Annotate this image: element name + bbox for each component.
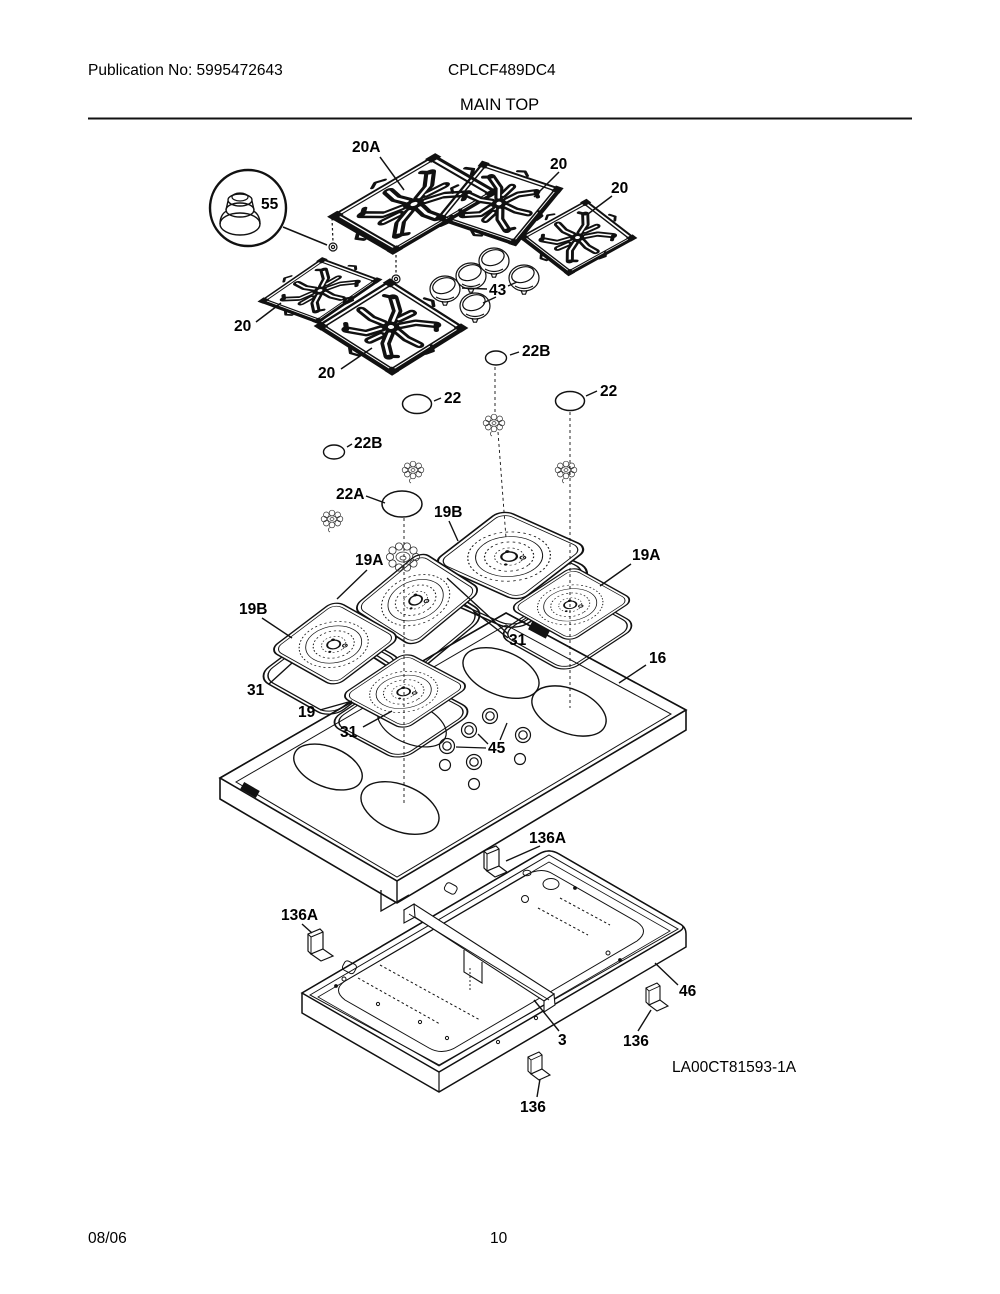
svg-text:136: 136 bbox=[520, 1099, 546, 1116]
svg-text:43: 43 bbox=[489, 282, 507, 299]
svg-text:55: 55 bbox=[261, 196, 279, 213]
svg-text:31: 31 bbox=[509, 632, 527, 649]
svg-text:16: 16 bbox=[649, 650, 667, 667]
svg-text:MAIN TOP: MAIN TOP bbox=[460, 96, 539, 114]
svg-text:3: 3 bbox=[558, 1032, 567, 1049]
svg-text:46: 46 bbox=[679, 983, 697, 1000]
svg-text:20A: 20A bbox=[352, 139, 380, 156]
svg-text:19B: 19B bbox=[434, 504, 462, 521]
svg-text:22A: 22A bbox=[336, 486, 364, 503]
svg-text:22: 22 bbox=[600, 383, 617, 400]
svg-text:45: 45 bbox=[488, 740, 506, 757]
svg-text:31: 31 bbox=[247, 682, 265, 699]
svg-text:19A: 19A bbox=[632, 547, 660, 564]
svg-text:20: 20 bbox=[550, 156, 567, 173]
svg-text:136A: 136A bbox=[529, 830, 566, 847]
svg-text:22: 22 bbox=[444, 390, 461, 407]
svg-text:19: 19 bbox=[298, 704, 316, 721]
svg-text:20: 20 bbox=[318, 365, 335, 382]
svg-text:136: 136 bbox=[623, 1033, 649, 1050]
svg-text:10: 10 bbox=[490, 1230, 508, 1247]
svg-text:136A: 136A bbox=[281, 907, 318, 924]
svg-text:19B: 19B bbox=[239, 601, 267, 618]
svg-text:08/06: 08/06 bbox=[88, 1230, 127, 1247]
svg-text:Publication No: 5995472643: Publication No: 5995472643 bbox=[88, 62, 283, 79]
svg-text:22B: 22B bbox=[354, 435, 382, 452]
svg-text:19A: 19A bbox=[355, 552, 383, 569]
svg-text:31: 31 bbox=[340, 724, 358, 741]
svg-text:20: 20 bbox=[611, 180, 628, 197]
svg-text:CPLCF489DC4: CPLCF489DC4 bbox=[448, 62, 556, 79]
svg-text:LA00CT81593-1A: LA00CT81593-1A bbox=[672, 1059, 797, 1076]
svg-text:22B: 22B bbox=[522, 343, 550, 360]
svg-text:20: 20 bbox=[234, 318, 251, 335]
